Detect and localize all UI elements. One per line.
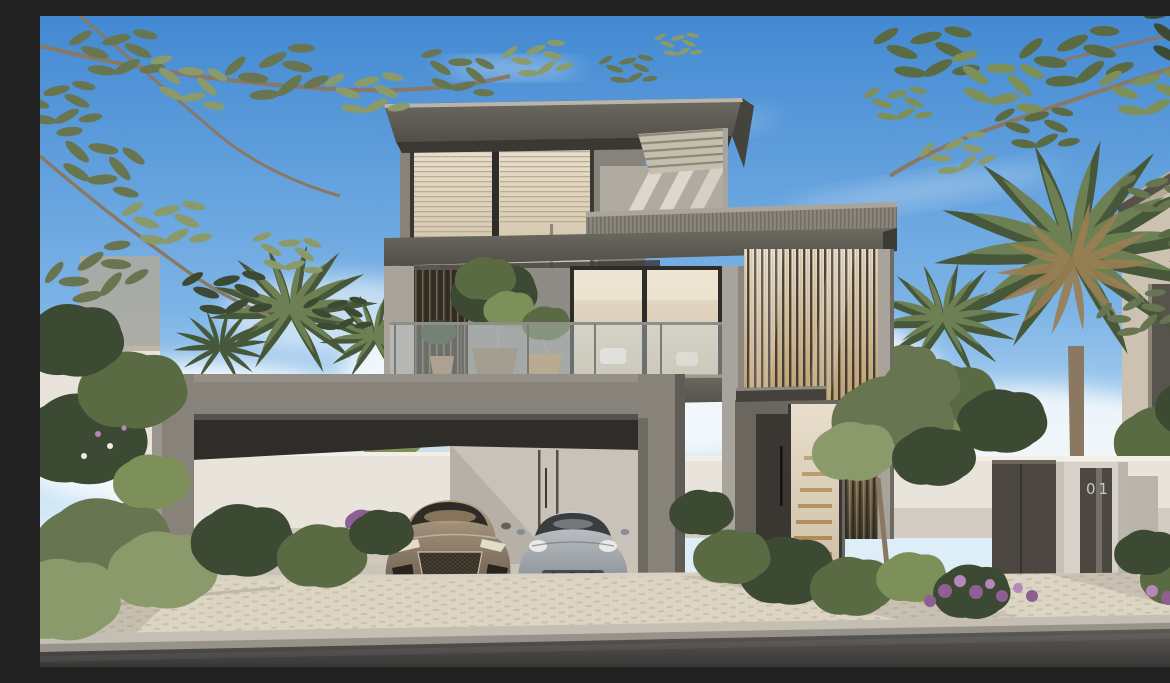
pergola-louvres [638,128,726,174]
headlight [599,540,617,552]
scene-canvas: 01 [40,16,1170,667]
garage-door-handle [545,468,547,508]
door-handle [780,446,783,506]
balcony-balustrade [390,322,730,376]
house-number: 01 [1086,480,1111,498]
headlight [529,540,547,552]
metal-gate-panel [992,460,1056,586]
villa-rendering: 01 [40,16,1170,667]
pergola-column [723,128,728,212]
